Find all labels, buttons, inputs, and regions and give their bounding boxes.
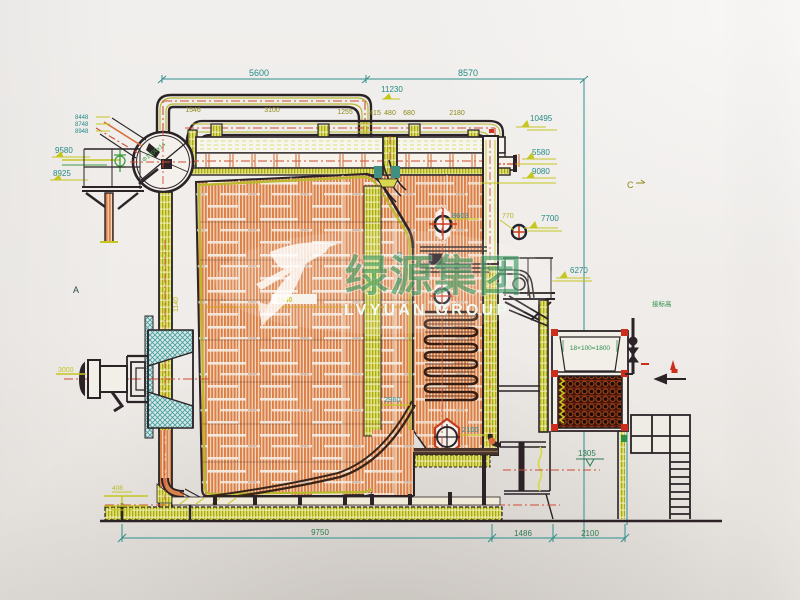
svg-text:8570: 8570 [458,68,478,78]
svg-text:9750: 9750 [311,528,329,537]
svg-text:8448: 8448 [75,115,89,121]
svg-text:8748: 8748 [75,122,89,128]
svg-text:绿源集团: 绿源集团 [345,253,523,301]
svg-text:1140: 1140 [173,297,180,312]
svg-text:770: 770 [502,213,514,220]
svg-text:3100: 3100 [264,107,280,114]
svg-text:8925: 8925 [53,169,71,178]
svg-text:480: 480 [384,110,396,117]
svg-text:A: A [73,285,79,295]
svg-text:2100: 2100 [462,425,479,434]
svg-text:LVYUAN GROUP: LVYUAN GROUP [344,302,510,319]
svg-text:2960: 2960 [384,395,401,404]
svg-text:10495: 10495 [530,114,553,123]
svg-text:7700: 7700 [541,214,559,223]
svg-text:9580: 9580 [55,146,73,155]
svg-text:8948: 8948 [75,129,89,135]
svg-text:1486: 1486 [514,529,532,538]
svg-text:408: 408 [112,485,123,492]
svg-text:5580: 5580 [532,148,550,157]
svg-text:3000: 3000 [58,367,74,374]
svg-text:1305: 1305 [578,449,596,458]
svg-text:415: 415 [369,110,381,117]
svg-text:1546: 1546 [185,107,201,114]
svg-text:2100: 2100 [581,529,599,538]
svg-text:680: 680 [403,110,415,117]
svg-text:18×100=1800: 18×100=1800 [570,345,611,352]
svg-text:9080: 9080 [532,167,550,176]
svg-text:11230: 11230 [381,85,403,94]
svg-text:2180: 2180 [449,110,465,117]
svg-text:接标高: 接标高 [652,299,672,308]
svg-text:5600: 5600 [249,68,269,78]
svg-text:1255: 1255 [337,109,353,116]
svg-text:C: C [627,180,634,190]
svg-text:6270: 6270 [570,266,588,275]
